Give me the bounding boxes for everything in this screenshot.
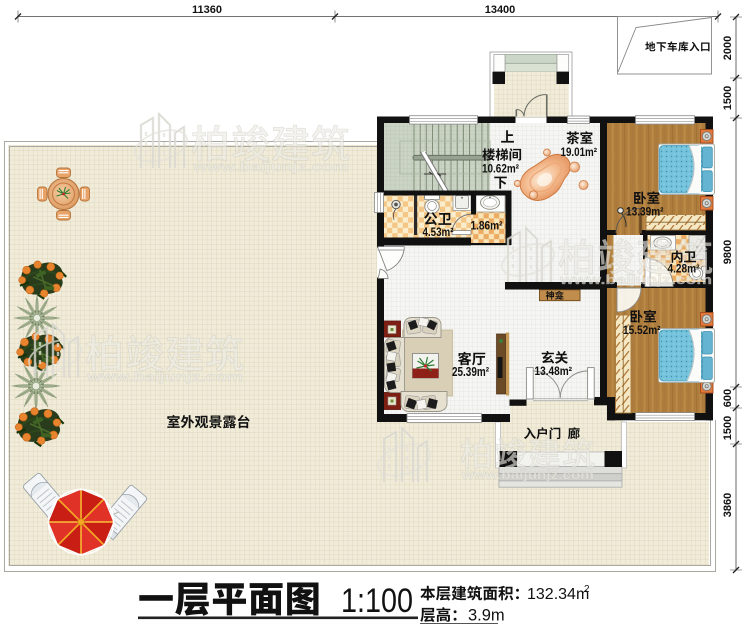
svg-text:1.86m²: 1.86m² [471,219,503,233]
svg-text:2000: 2000 [722,36,734,60]
svg-text:1500: 1500 [722,416,734,440]
svg-text:11360: 11360 [192,4,222,16]
svg-text:13.39m²: 13.39m² [626,205,664,219]
svg-text:3860: 3860 [722,493,734,517]
svg-text:3.9m: 3.9m [468,607,505,625]
svg-text:13400: 13400 [485,4,516,16]
svg-text:www.baijunjz.com: www.baijunjz.com [86,369,243,384]
svg-text:4.53m²: 4.53m² [423,225,454,239]
svg-text:2: 2 [584,584,590,595]
svg-text:25.39m²: 25.39m² [452,365,489,379]
svg-text:www.baijunjz.com: www.baijunjz.com [192,159,349,174]
svg-text:1:100: 1:100 [341,582,413,620]
svg-text:1500: 1500 [722,86,734,110]
svg-text:www.baijunjz.com: www.baijunjz.com [461,467,594,482]
svg-text:19.01m²: 19.01m² [561,145,598,159]
svg-text:15.52m²: 15.52m² [623,323,661,337]
svg-text:9800: 9800 [722,240,734,264]
svg-text:132.34m: 132.34m [527,586,589,603]
svg-text:4.28m²: 4.28m² [668,264,700,276]
svg-text:13.48m²: 13.48m² [535,364,573,378]
svg-text:10.62m²: 10.62m² [482,162,519,176]
svg-text:600: 600 [722,389,734,407]
